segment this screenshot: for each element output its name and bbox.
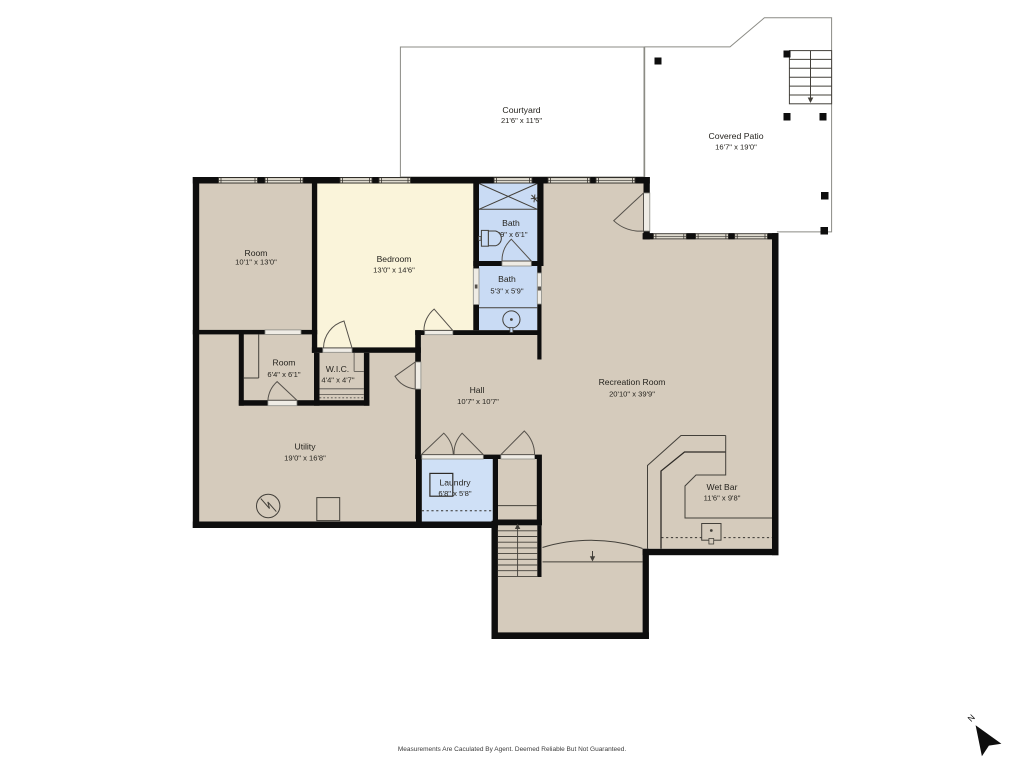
svg-text:16'7" x 19'0": 16'7" x 19'0"	[715, 143, 757, 152]
svg-text:11'6" x 9'8": 11'6" x 9'8"	[704, 494, 741, 503]
svg-text:Courtyard: Courtyard	[502, 105, 540, 115]
svg-text:Room: Room	[245, 248, 268, 258]
svg-text:Utility: Utility	[294, 442, 316, 452]
svg-text:10'7" x 10'7": 10'7" x 10'7"	[457, 397, 499, 406]
svg-text:Hall: Hall	[470, 385, 485, 395]
svg-text:Laundry: Laundry	[439, 478, 471, 488]
svg-text:4'4" x 4'7": 4'4" x 4'7"	[321, 376, 355, 385]
svg-text:21'6" x 11'5": 21'6" x 11'5"	[501, 116, 542, 125]
svg-text:Bath: Bath	[502, 218, 520, 228]
svg-text:Recreation Room: Recreation Room	[599, 377, 666, 387]
svg-text:Room: Room	[273, 358, 296, 368]
svg-text:6'4" x 6'1": 6'4" x 6'1"	[267, 370, 301, 379]
svg-text:5'3" x 5'9": 5'3" x 5'9"	[490, 287, 524, 296]
svg-text:W.I.C.: W.I.C.	[326, 364, 349, 374]
svg-text:20'10" x 39'9": 20'10" x 39'9"	[609, 390, 655, 399]
svg-text:Bath: Bath	[498, 274, 516, 284]
svg-text:Bedroom: Bedroom	[377, 254, 412, 264]
svg-text:Covered Patio: Covered Patio	[708, 131, 763, 141]
svg-text:Measurements Are Caculated By: Measurements Are Caculated By Agent. Dee…	[398, 746, 627, 753]
svg-text:19'0" x 16'8": 19'0" x 16'8"	[284, 454, 326, 463]
svg-text:13'0" x 14'6": 13'0" x 14'6"	[373, 266, 415, 275]
svg-text:10'1" x 13'0": 10'1" x 13'0"	[235, 258, 277, 267]
svg-text:Wet Bar: Wet Bar	[707, 482, 738, 492]
